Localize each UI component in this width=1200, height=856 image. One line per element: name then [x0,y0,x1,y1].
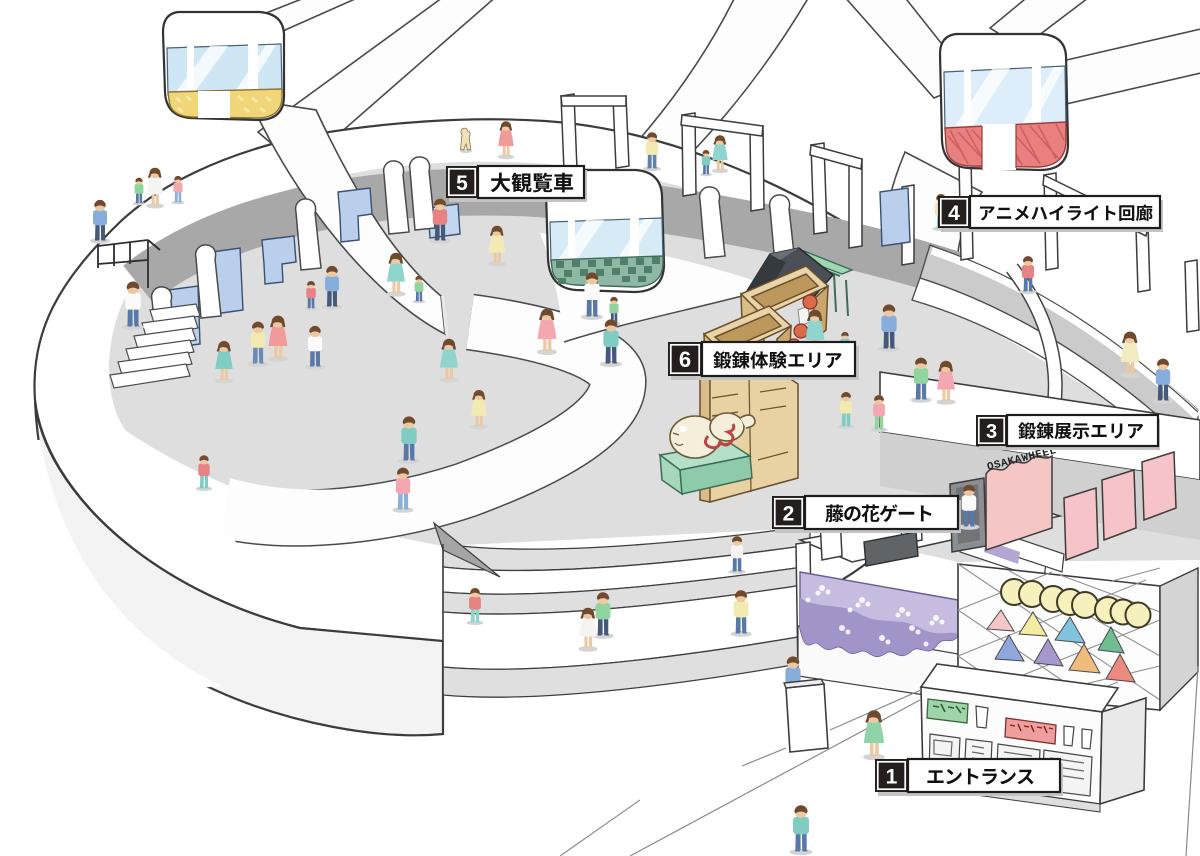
svg-text:2: 2 [783,503,795,526]
svg-text:4: 4 [948,202,960,225]
svg-text:3: 3 [986,421,997,443]
svg-text:6: 6 [679,347,691,372]
svg-text:5: 5 [456,172,468,195]
svg-text:1: 1 [886,766,898,789]
